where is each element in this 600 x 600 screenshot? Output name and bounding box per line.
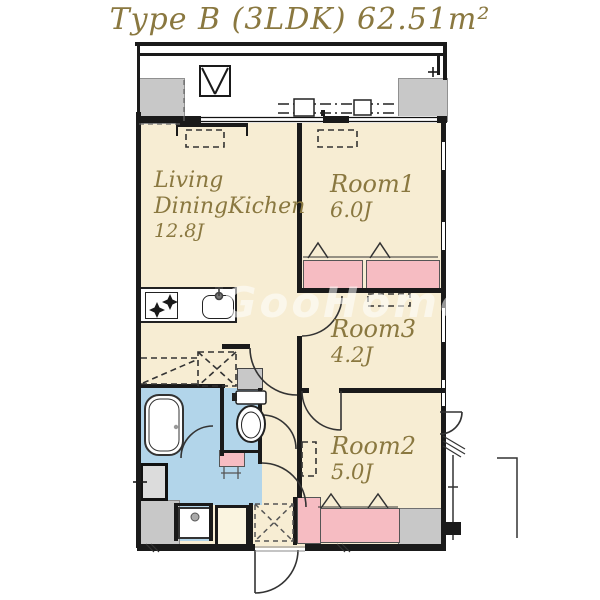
wall-bottom-left: [137, 544, 255, 551]
entry-storage: [215, 505, 249, 545]
wall-balcony-left: [137, 42, 140, 116]
wall-toilet-right: [258, 388, 262, 452]
wall-balcony-right-inner: [437, 53, 440, 75]
wall-balcony-inner-top: [137, 53, 443, 56]
wall-entry-left: [249, 503, 253, 545]
room2-label: Room2 5.0J: [331, 432, 416, 485]
wall-ldk-step: [176, 122, 248, 127]
pipe-space-box: [237, 368, 263, 390]
window-room1-a: [441, 142, 446, 170]
ldk-label: Living DiningKichen 12.8J: [154, 168, 305, 242]
wall-balcony-outer-top: [135, 42, 447, 46]
wall-laundry-top: [174, 503, 213, 506]
wall-ldk-step-end-l: [176, 122, 178, 136]
window-room2: [441, 380, 446, 406]
wall-room3-room2-a: [297, 388, 309, 393]
wall-entry-closet-left: [293, 497, 297, 545]
wall-left: [136, 112, 141, 548]
wall-center-lower: [297, 336, 302, 498]
plan-title: Type B (3LDK) 62.51m²: [0, 2, 600, 37]
bathroom-floor: [140, 388, 222, 460]
room1-label: Room1 6.0J: [330, 170, 415, 223]
balcony-overhang-lines: [278, 99, 397, 116]
wall-laundry-left: [174, 503, 178, 541]
window-room1-b: [441, 222, 446, 250]
meter-box: [140, 463, 168, 501]
wall-balcony-right: [443, 42, 447, 80]
watermark: GooHome: [222, 278, 471, 327]
room2-name: Room2: [331, 432, 416, 460]
room1-size: 6.0J: [330, 198, 415, 223]
wall-hall-stub: [222, 344, 250, 349]
corridor-lines: [446, 455, 517, 540]
room3-size: 4.2J: [331, 343, 416, 368]
wall-bottom-right: [305, 544, 446, 551]
wall-bath-right: [220, 384, 224, 456]
wall-toilet-bottom: [222, 450, 262, 453]
room1-name: Room1: [330, 170, 415, 198]
pillar-bottom-right: [398, 508, 446, 548]
entrance-door-arc: [255, 550, 298, 593]
washing-machine-pan: [178, 507, 212, 539]
wall-laundry-right: [209, 503, 213, 541]
wall-room3-room2-b: [339, 388, 446, 393]
stove-box: [145, 292, 178, 319]
ldk-label-line2: DiningKichen: [154, 194, 305, 220]
ac-outdoor-unit-icon: [200, 66, 230, 96]
toilet-room-floor: [222, 388, 262, 452]
room2-closet-bottom: [318, 508, 400, 543]
floorplan: Type B (3LDK) 62.51m² Living DiningKiche…: [0, 0, 600, 600]
ldk-size: 12.8J: [154, 220, 305, 242]
ldk-label-line1: Living: [154, 168, 305, 194]
entry-closet: [297, 497, 321, 544]
wall-washroom-right-stub: [258, 452, 262, 464]
wall-window-b: [323, 116, 349, 123]
wall-ldk-step-end-r: [246, 122, 248, 136]
wall-bath-top: [137, 384, 225, 388]
room2-size: 5.0J: [331, 460, 416, 485]
wall-window-post: [321, 110, 325, 123]
